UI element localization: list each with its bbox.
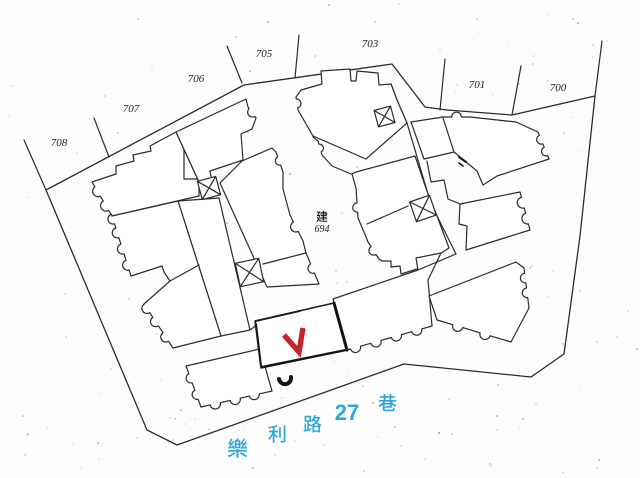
svg-text:694: 694	[315, 224, 330, 235]
svg-text:703: 703	[362, 38, 379, 50]
svg-text:27: 27	[335, 400, 359, 425]
svg-text:701: 701	[469, 79, 486, 91]
svg-text:706: 706	[188, 73, 205, 85]
svg-text:708: 708	[51, 137, 68, 149]
svg-text:700: 700	[550, 82, 567, 94]
svg-text:705: 705	[256, 48, 273, 60]
svg-text:707: 707	[123, 103, 140, 115]
